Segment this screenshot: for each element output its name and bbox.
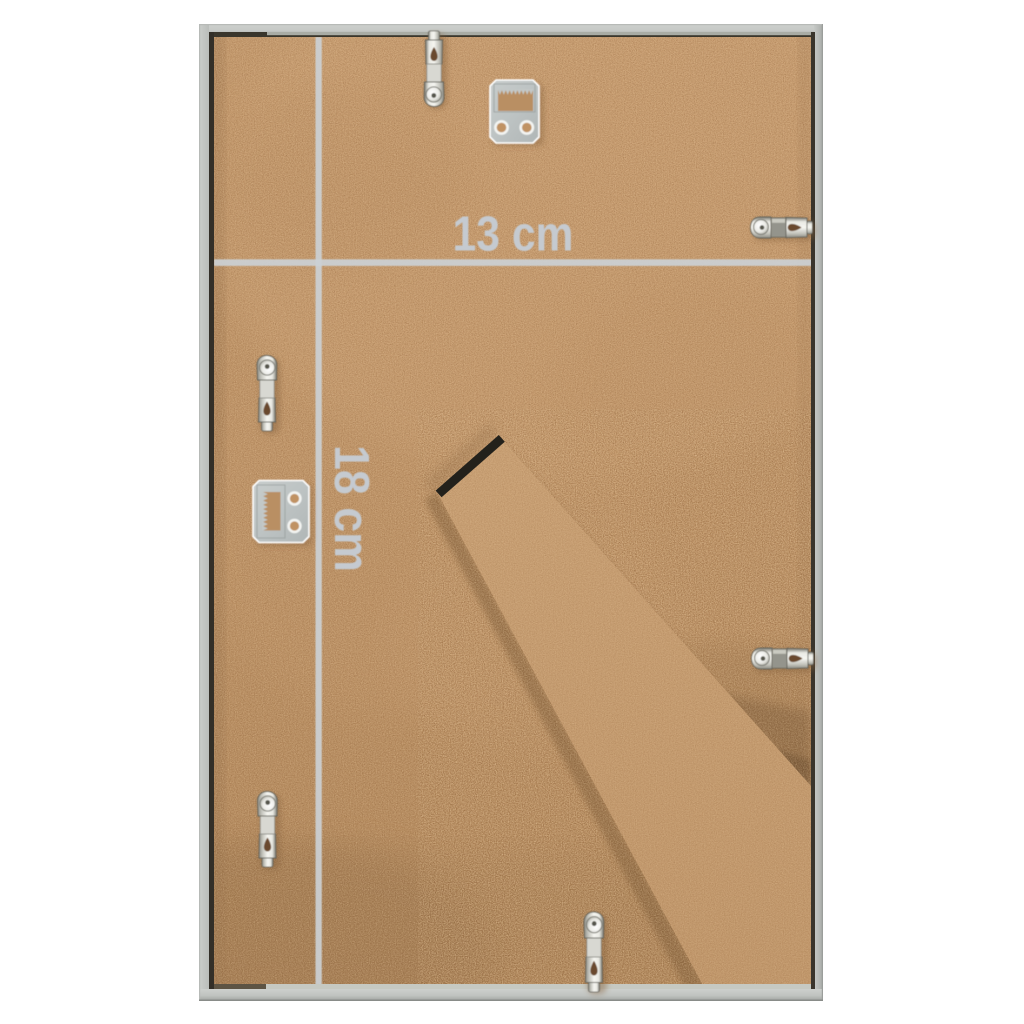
svg-text:18 cm: 18 cm — [324, 445, 378, 572]
svg-text:13 cm: 13 cm — [453, 208, 574, 262]
